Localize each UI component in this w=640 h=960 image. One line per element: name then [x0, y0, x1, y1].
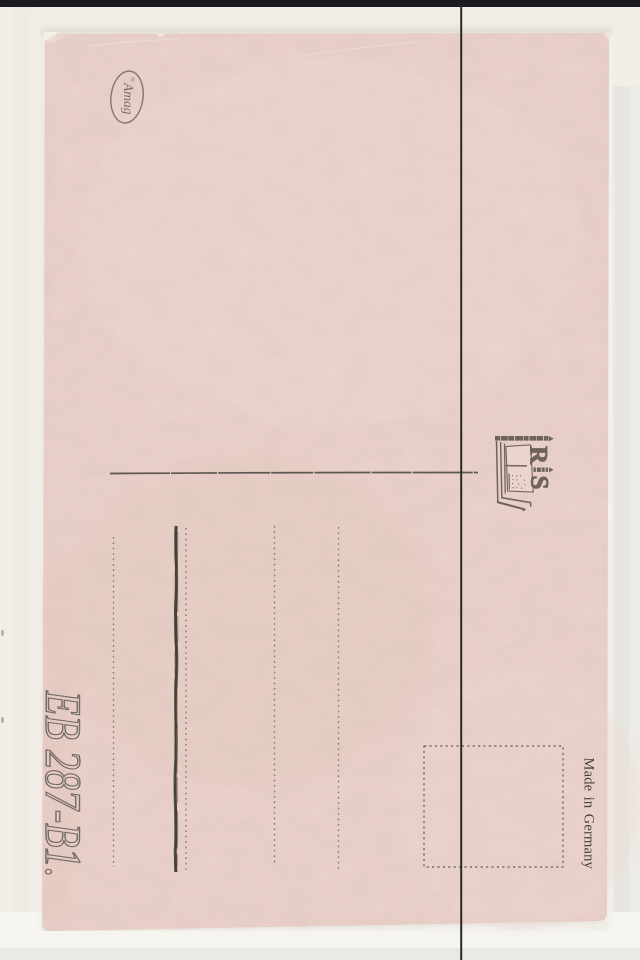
svg-text:®: ®: [129, 77, 136, 82]
svg-text:R: R: [525, 446, 552, 465]
svg-text:EB 287-B1.: EB 287-B1.: [35, 690, 92, 877]
svg-text:Made in Germany: Made in Germany: [581, 758, 597, 870]
svg-text:Amag: Amag: [121, 82, 136, 115]
svg-text:S: S: [526, 476, 553, 490]
